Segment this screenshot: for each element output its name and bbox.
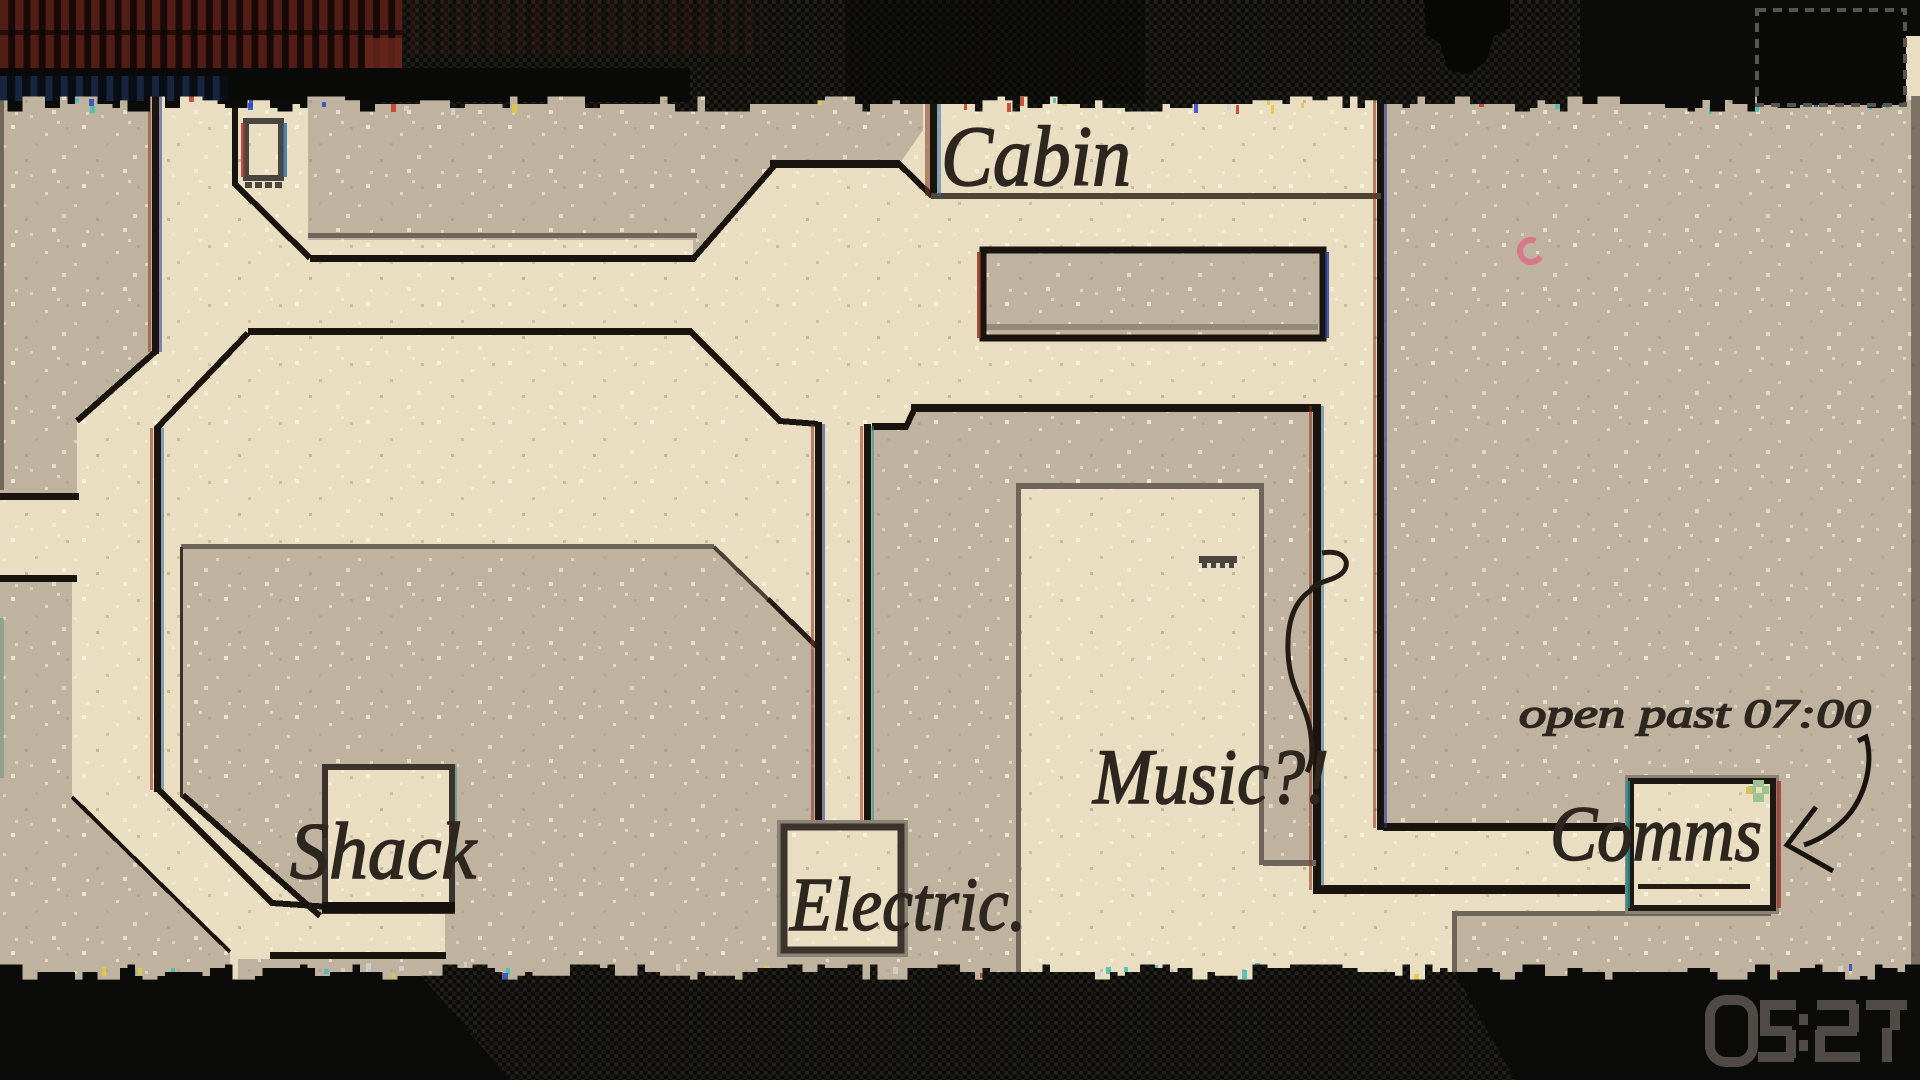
svg-text:Music?!: Music?!	[1092, 733, 1329, 820]
svg-text:Cabin: Cabin	[941, 108, 1131, 204]
svg-text:Comms: Comms	[1550, 790, 1762, 877]
svg-text:Shack: Shack	[290, 808, 477, 896]
svg-text:open past 07:00: open past 07:00	[1519, 691, 1871, 736]
svg-text:Electric.: Electric.	[789, 863, 1026, 947]
